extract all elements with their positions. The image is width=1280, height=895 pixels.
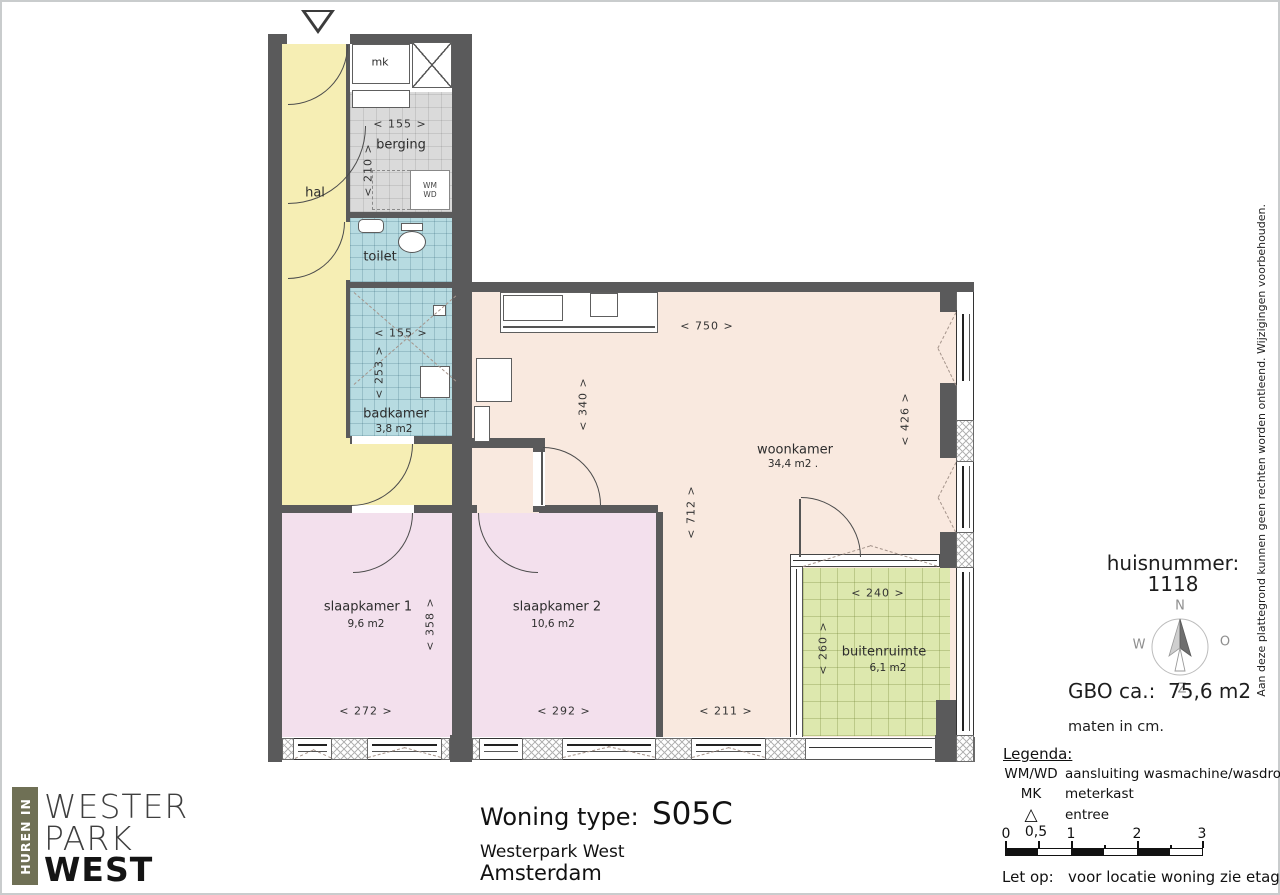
let-op-note: Let op: voor locatie woning zie etageove… [1002,868,1280,886]
area-woonkamer: 34,4 m2 . [768,458,818,470]
window [692,738,765,760]
scale-label-3: 3 [1198,826,1207,842]
berging-counter [352,90,410,108]
label-mk: mk [371,56,388,69]
wall [940,532,956,568]
wall-hatch [956,735,974,762]
wall-niche [474,406,490,442]
dim-berging-h: < 210 > [362,143,375,196]
legend-key-wmwd: WM/WD [1004,766,1057,782]
wall [656,512,663,737]
kitchen-stove [590,293,618,317]
wall [350,212,452,218]
kitchen-sink [503,295,563,321]
wall [282,505,352,513]
legend-desc-mk: meterkast [1065,786,1134,802]
wm-label: WM [423,181,437,190]
wall [539,505,658,513]
wall [350,282,452,288]
toilet-sink [358,219,384,233]
scale-tick [1104,845,1106,848]
compass-west-label: W [1133,638,1146,653]
dim-badkamer-w: < 155 > [374,327,427,340]
wmwd-label: WMWD [423,181,437,199]
wall-hatch [655,738,692,760]
wall [936,700,956,737]
brand-line3: WEST [44,853,153,886]
huisnummer-value: 1118 [1148,572,1199,596]
project-name: Westerpark West [480,842,624,862]
woning-type-value: S05C [652,796,733,832]
window [956,310,974,385]
window [956,462,974,532]
wall [268,34,282,762]
label-slaapkamer-1: slaapkamer 1 [324,600,412,615]
wall-hatch [765,738,806,760]
wall-hatch [956,420,974,462]
dim-woonkamer-h-left: < 340 > [577,377,590,430]
scale-seg [1137,848,1170,856]
scale-label-2: 2 [1133,826,1142,842]
label-badkamer: badkamer [363,407,429,422]
legenda-title: Legenda: [1003,745,1072,763]
dim-buitenruimte-h: < 260 > [817,621,830,674]
counter-edge [503,326,655,328]
dim-slaapkamer1-h: < 358 > [424,597,437,650]
area-slaapkamer-2: 10,6 m2 [531,618,575,630]
scale-label-0: 0 [1002,826,1011,842]
scale-label-05: 0,5 [1025,824,1047,840]
glass-panel [790,567,803,737]
scale-tick [1137,841,1139,848]
label-buitenruimte: buitenruimte [842,645,926,660]
scale-tick [1005,841,1007,848]
wall-hatch [522,738,563,760]
wall [452,505,472,737]
dim-slaapkamer1-w: < 272 > [339,705,392,718]
scale-seg [1071,848,1104,856]
disclaimer-text: Aan deze plattegrond kunnen geen rechten… [1255,204,1268,697]
wall [414,436,452,444]
dim-buitenruimte-w: < 240 > [851,587,904,600]
woning-type-label: Woning type: [480,803,639,831]
label-hal: hal [305,186,325,201]
scale-tick [1202,841,1204,848]
compass-north-label: N [1175,599,1185,614]
brand-vertical-label: HUREN IN [18,798,33,875]
note-text: voor locatie woning zie etageoverzicht. [1068,868,1280,886]
area-slaapkamer-1: 9,6 m2 [348,618,385,630]
brand-vertical-bar: HUREN IN [12,787,38,885]
wd-label: WD [423,190,436,199]
note-label: Let op: [1002,868,1054,886]
wall [940,383,956,458]
dim-woonkamer-h-mid: < 712 > [685,485,698,538]
scale-tick [1038,841,1040,848]
scale-label-1: 1 [1067,826,1076,842]
gbo-label: GBO ca.: [1068,679,1155,703]
wall [350,436,352,444]
floorplan-page: WMWD hal mk berging toilet badkamer 3,8 … [0,0,1280,895]
fridge-cabinet [476,358,512,402]
entree-triangle-inner [306,12,330,29]
wall [450,735,472,762]
wall [935,735,958,762]
wall-hatch [282,738,294,760]
entree-opening [287,34,350,44]
window [480,738,522,760]
legend-desc-entree: entree [1065,807,1109,823]
area-buitenruimte: 6,1 m2 [870,662,907,674]
wall-hatch [956,532,974,568]
label-berging: berging [376,138,426,153]
dim-slaapkamer2-w: < 292 > [537,705,590,718]
wc-tank [401,223,423,231]
dim-berging-w: < 155 > [373,118,426,131]
dim-woonkamer-h-right: < 426 > [899,392,912,445]
wall [940,285,956,312]
legend-key-mk: MK [1021,786,1042,802]
scale-tick [1170,845,1172,848]
legend-key-entree-icon: △ [1024,805,1037,825]
window [563,738,655,760]
maten-note: maten in cm. [1068,719,1164,735]
wall-hatch [441,738,450,760]
wall [452,438,544,448]
wall-hatch [331,738,368,760]
label-slaapkamer-2: slaapkamer 2 [513,600,601,615]
legend-desc-wmwd: aansluiting wasmachine/wasdroger [1065,766,1280,782]
dim-woonkamer-bottom-w: < 211 > [699,705,752,718]
wc-bowl [398,231,426,253]
window [956,568,974,735]
dim-badkamer-h: < 253 > [373,345,386,398]
label-toilet: toilet [363,250,396,265]
window [368,738,441,760]
gbo-line: GBO ca.: 75,6 m2 [1068,679,1251,703]
city-name: Amsterdam [480,861,602,885]
area-badkamer: 3,8 m2 [376,423,413,435]
scale-tick [1071,841,1073,848]
compass-east-label: O [1220,635,1230,650]
shaft-x-box [412,42,452,88]
buitenruimte-sill [806,738,935,760]
dim-woonkamer-w: < 750 > [680,320,733,333]
label-woonkamer: woonkamer [757,443,833,458]
floorplan: WMWD hal mk berging toilet badkamer 3,8 … [0,0,1280,895]
disclaimer: Aan deze plattegrond kunnen geen rechten… [1252,40,1270,860]
wall [346,280,350,438]
scale-seg [1005,848,1038,856]
wall-hatch [472,738,480,760]
gbo-value: 75,6 m2 [1168,679,1251,703]
wall [458,282,974,292]
